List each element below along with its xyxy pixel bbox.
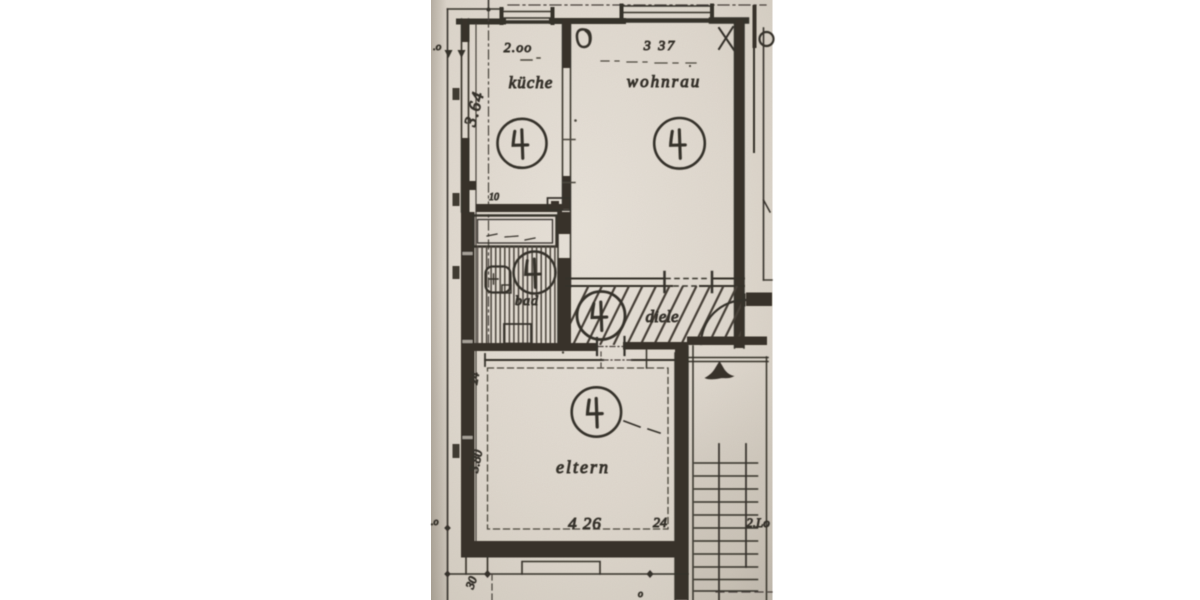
svg-text:eltern: eltern: [556, 457, 610, 477]
svg-text:diele: diele: [645, 307, 678, 326]
svg-text:o: o: [638, 589, 643, 600]
svg-text:.o: .o: [433, 41, 442, 53]
svg-text:.o: .o: [431, 517, 439, 528]
svg-text:wohnrau: wohnrau: [627, 72, 701, 91]
svg-text:3 37: 3 37: [643, 39, 677, 54]
svg-text:bad: bad: [515, 294, 539, 309]
svg-text:24: 24: [653, 516, 667, 531]
svg-text:küche: küche: [509, 73, 554, 92]
svg-text:2.oo: 2.oo: [504, 41, 533, 56]
svg-text:10: 10: [489, 192, 499, 203]
svg-text:24: 24: [466, 371, 482, 385]
svg-text:4 26: 4 26: [568, 514, 602, 533]
svg-text:2.Lo: 2.Lo: [746, 515, 770, 530]
